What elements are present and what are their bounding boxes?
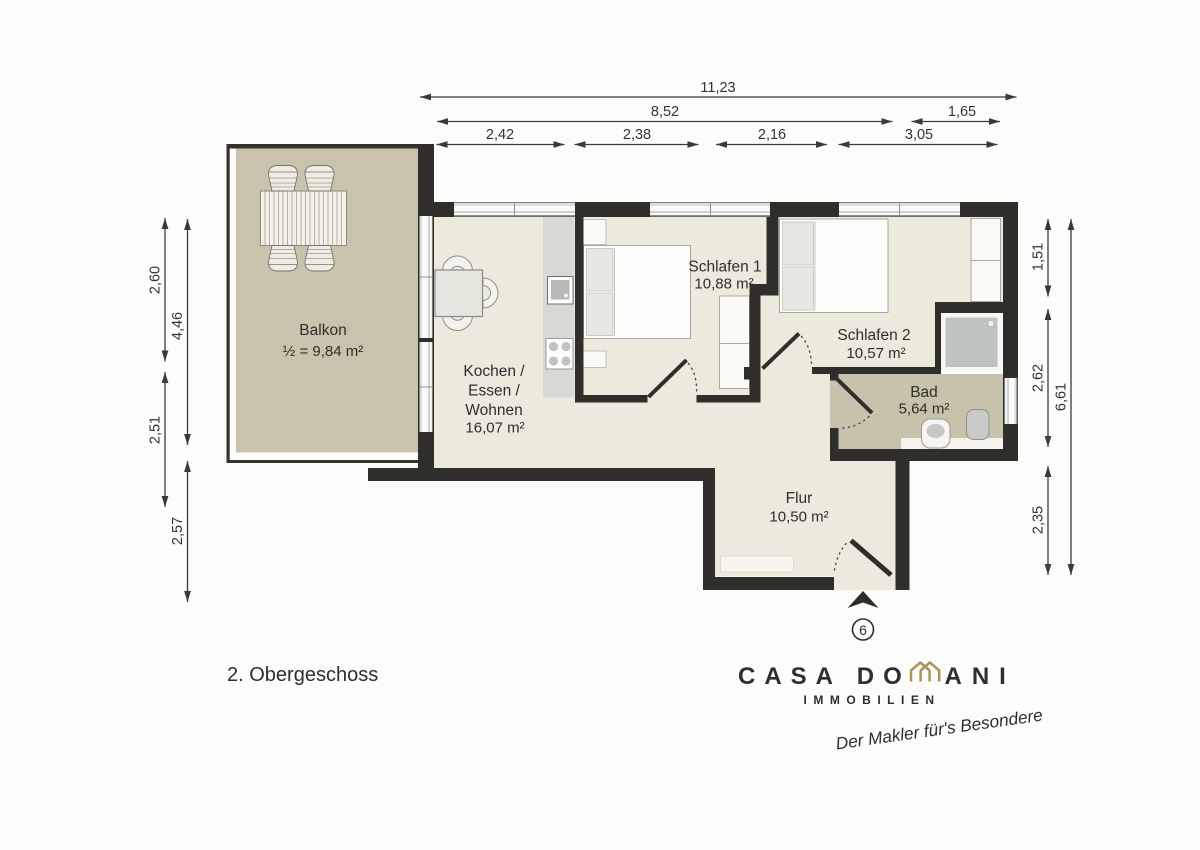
svg-text:Flur: Flur — [786, 490, 813, 507]
svg-text:6,61: 6,61 — [1054, 383, 1070, 411]
svg-text:Schlafen 2: Schlafen 2 — [837, 327, 910, 344]
svg-text:2,42: 2,42 — [486, 127, 514, 143]
svg-text:6: 6 — [859, 622, 867, 638]
svg-text:10,50 m²: 10,50 m² — [769, 509, 828, 526]
svg-text:2,38: 2,38 — [623, 127, 651, 143]
svg-text:1,65: 1,65 — [948, 104, 976, 120]
svg-text:11,23: 11,23 — [700, 80, 735, 96]
svg-text:10,57 m²: 10,57 m² — [846, 345, 905, 362]
svg-text:Balkon: Balkon — [299, 322, 346, 339]
svg-text:1,51: 1,51 — [1031, 243, 1047, 271]
svg-text:2,62: 2,62 — [1031, 364, 1047, 392]
svg-text:8,52: 8,52 — [651, 104, 679, 120]
svg-text:4,46: 4,46 — [170, 312, 186, 340]
svg-text:Wohnen: Wohnen — [465, 402, 522, 419]
svg-text:Essen /: Essen / — [468, 383, 520, 400]
svg-text:Kochen /: Kochen / — [463, 363, 525, 380]
svg-text:3,05: 3,05 — [905, 127, 933, 143]
svg-text:2,60: 2,60 — [148, 266, 164, 294]
svg-text:16,07 m²: 16,07 m² — [465, 420, 524, 437]
svg-text:CASA DO: CASA DO — [738, 663, 911, 690]
svg-text:ANI: ANI — [945, 663, 1016, 690]
svg-text:Bad: Bad — [910, 384, 938, 401]
svg-text:2,16: 2,16 — [758, 127, 786, 143]
svg-text:2,35: 2,35 — [1031, 506, 1047, 534]
svg-text:5,64 m²: 5,64 m² — [899, 401, 950, 418]
svg-text:2. Obergeschoss: 2. Obergeschoss — [227, 664, 378, 686]
svg-text:2,57: 2,57 — [170, 517, 186, 545]
svg-text:½ = 9,84 m²: ½ = 9,84 m² — [283, 343, 363, 360]
svg-text:2,51: 2,51 — [148, 416, 164, 444]
svg-text:Schlafen 1: Schlafen 1 — [688, 259, 761, 276]
svg-text:IMMOBILIEN: IMMOBILIEN — [804, 693, 941, 707]
svg-text:10,88 m²: 10,88 m² — [694, 276, 753, 293]
